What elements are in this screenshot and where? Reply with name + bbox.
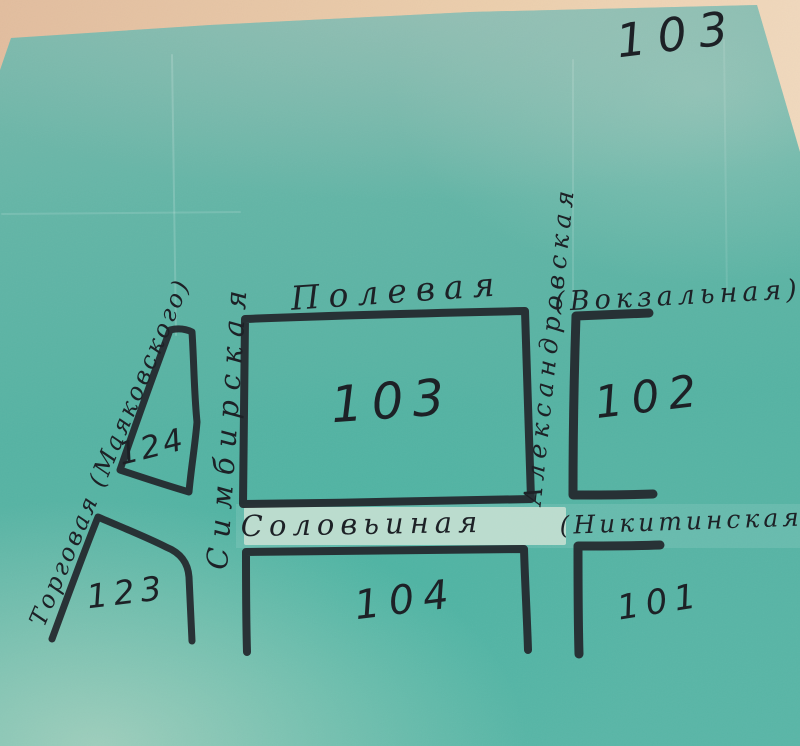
street-label-solovinaya: Соловьиная bbox=[240, 505, 483, 543]
block-number-103: 103 bbox=[329, 368, 455, 434]
scanned-map-page: 103 Полевая (Вокзальная) Александровская… bbox=[0, 0, 800, 746]
